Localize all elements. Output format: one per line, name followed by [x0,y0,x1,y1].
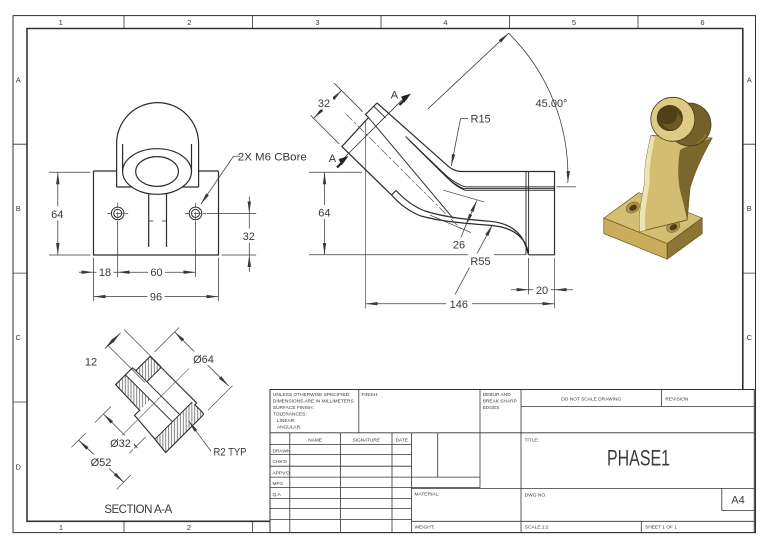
svg-text:A: A [16,75,21,84]
svg-text:SURFACE FINISH:: SURFACE FINISH: [273,405,314,411]
svg-text:64: 64 [318,207,330,219]
svg-text:DIMENSIONS ARE IN MILLIMETERS: DIMENSIONS ARE IN MILLIMETERS [273,398,354,404]
svg-text:A: A [747,75,752,84]
svg-text:Ø52: Ø52 [91,457,112,469]
svg-text:3: 3 [315,18,319,27]
svg-text:C: C [747,333,753,342]
svg-text:LINEAR:: LINEAR: [277,418,296,424]
svg-text:A4: A4 [731,495,744,507]
svg-text:UNLESS OTHERWISE SPECIFIED:: UNLESS OTHERWISE SPECIFIED: [273,392,350,398]
svg-text:A: A [329,153,337,165]
svg-text:12: 12 [85,357,97,369]
svg-text:26: 26 [453,240,465,252]
svg-text:2X M6 CBore: 2X M6 CBore [238,151,307,163]
svg-text:NAME: NAME [308,437,322,443]
svg-text:Q.A: Q.A [273,492,282,498]
svg-text:20: 20 [536,285,548,297]
svg-text:DO NOT SCALE DRAWING: DO NOT SCALE DRAWING [561,397,621,403]
svg-text:MATERIAL:: MATERIAL: [415,491,440,497]
svg-text:32: 32 [318,98,330,110]
svg-text:DRAWN: DRAWN [273,448,291,454]
svg-text:DEBUR AND: DEBUR AND [483,392,512,398]
svg-text:SIGNATURE: SIGNATURE [352,437,380,443]
svg-text:45.00°: 45.00° [536,98,568,110]
svg-text:96: 96 [150,292,162,304]
svg-text:ANGULAR:: ANGULAR: [277,424,302,430]
svg-text:32: 32 [243,231,255,243]
svg-text:REVISION: REVISION [665,397,688,403]
svg-text:Ø64: Ø64 [193,354,214,366]
svg-text:R55: R55 [470,256,490,268]
svg-text:64: 64 [51,209,63,221]
svg-text:B: B [747,204,752,213]
svg-text:DATE: DATE [396,437,408,443]
svg-text:Ø32: Ø32 [110,438,131,450]
svg-text:DWG NO.: DWG NO. [525,492,547,498]
svg-text:BREAK SHARP: BREAK SHARP [483,398,517,404]
svg-text:4: 4 [443,18,447,27]
svg-text:18: 18 [99,267,111,279]
svg-text:6: 6 [700,18,704,27]
svg-text:MFG: MFG [273,481,284,487]
svg-text:146: 146 [450,299,468,311]
svg-text:C: C [15,333,21,342]
svg-text:CHK'D: CHK'D [273,459,288,465]
svg-text:SHEET 1 OF 1: SHEET 1 OF 1 [645,524,677,530]
svg-text:WEIGHT:: WEIGHT: [415,524,435,530]
svg-text:PHASE1: PHASE1 [607,446,670,471]
svg-text:SECTION A-A: SECTION A-A [104,504,172,516]
svg-text:1: 1 [59,18,63,27]
svg-text:FINISH:: FINISH: [362,392,379,398]
svg-text:A: A [391,90,399,102]
svg-text:EDGES: EDGES [483,405,500,411]
svg-text:2: 2 [187,18,191,27]
svg-text:D: D [15,463,21,472]
svg-text:TOLERANCES:: TOLERANCES: [273,411,307,417]
svg-text:B: B [16,204,21,213]
svg-text:1: 1 [59,523,63,532]
svg-text:R15: R15 [471,114,491,126]
svg-text:2: 2 [187,523,191,532]
svg-text:60: 60 [150,267,162,279]
svg-text:TITLE:: TITLE: [525,437,539,443]
svg-text:SCALE:1:2: SCALE:1:2 [525,524,549,530]
svg-text:R2 TYP: R2 TYP [214,447,247,459]
svg-text:APPV'D: APPV'D [273,471,291,477]
svg-text:5: 5 [572,18,576,27]
